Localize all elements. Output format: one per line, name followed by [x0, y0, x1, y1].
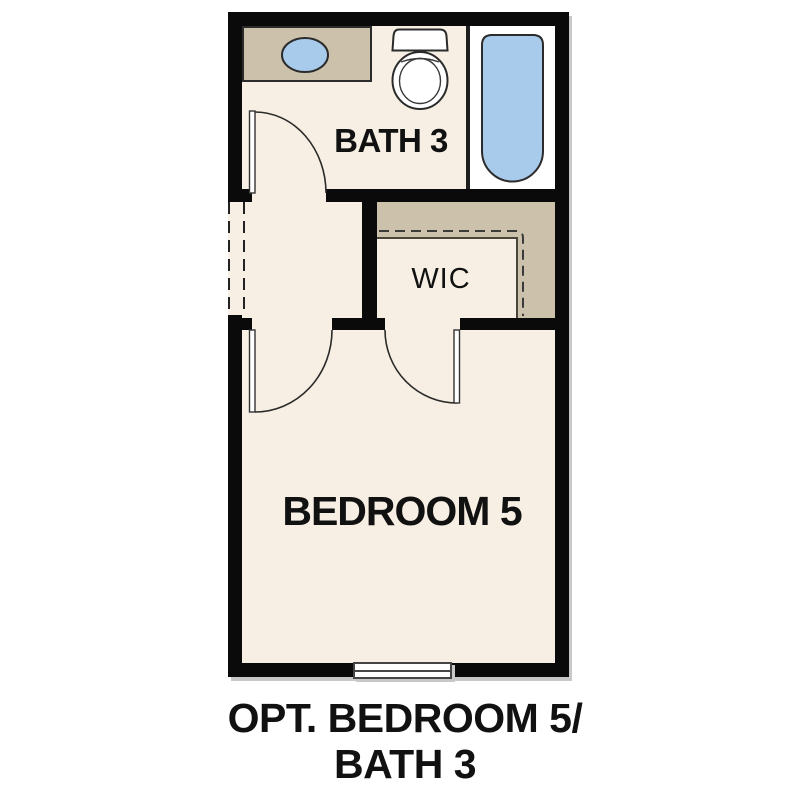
hall-wall-opening-floor	[228, 202, 242, 315]
vanity-counter	[242, 26, 372, 82]
bathtub-alcove	[470, 26, 555, 189]
room-label-bedroom: BEDROOM 5	[202, 489, 602, 533]
wall-bath-main	[326, 189, 569, 202]
wall-bath-stub	[228, 189, 252, 202]
wall-right	[555, 12, 569, 677]
wall-top	[228, 12, 569, 26]
room-label-bath: BATH 3	[291, 124, 491, 158]
wall-bedroom-mid	[332, 318, 385, 330]
wall-tub-divider	[466, 26, 470, 189]
wall-bedroom-stub	[228, 318, 252, 330]
caption-title: OPT. BEDROOM 5/ BATH 3	[0, 695, 810, 787]
floorplan	[228, 12, 569, 677]
window-mullion	[355, 670, 450, 672]
room-label-wic: WIC	[361, 264, 521, 294]
window	[353, 662, 452, 679]
wall-bedroom-right	[460, 318, 569, 330]
wall-left-upper	[228, 12, 242, 202]
caption-line2: BATH 3	[0, 741, 810, 787]
caption-line1: OPT. BEDROOM 5/	[0, 695, 810, 741]
